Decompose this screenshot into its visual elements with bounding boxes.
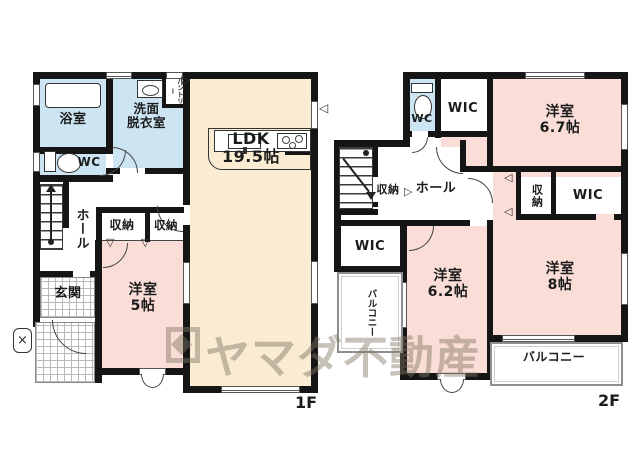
wall: [95, 240, 102, 383]
wall: [334, 220, 470, 226]
wall: [63, 180, 69, 228]
window: [311, 101, 318, 129]
room-wic-right: WIC: [556, 183, 620, 209]
floor-label-1f: 1F: [295, 393, 317, 412]
room-ldk: LDK19.5帖: [197, 122, 305, 174]
closet-door-marker-icon: ◁: [504, 172, 512, 183]
closet-door-marker-icon: ▽: [141, 237, 149, 248]
closet-door-marker-icon: ▽: [106, 237, 114, 248]
window: [621, 104, 628, 150]
sliding-door: [183, 262, 190, 304]
floor-label-2f: 2F: [598, 391, 620, 410]
window: [33, 152, 40, 172]
bathtub-icon: [45, 83, 101, 108]
room-hall-2f: ホール: [405, 178, 467, 200]
window: [106, 72, 132, 79]
room-balcony-bottom: バルコニー: [498, 347, 610, 369]
room-wc-2f: WC: [405, 110, 439, 128]
room-storage-b: 収納: [147, 212, 185, 240]
wall: [551, 214, 596, 220]
stairs-start-dot: [363, 150, 369, 156]
wall: [334, 209, 380, 215]
wall: [463, 166, 628, 172]
stairs-arrow-head: [46, 184, 56, 192]
closet-door-marker-icon: ◁: [504, 206, 512, 217]
wall: [516, 214, 556, 220]
window: [33, 84, 40, 106]
toilet-tank-icon: [411, 83, 433, 93]
door-arc: [468, 178, 493, 203]
floor-plan-canvas: × ▷ ◁ ▽ ▽ 浴室 洗面脱衣室 パントリー WC ホール 収納 収納 玄関…: [0, 0, 640, 469]
room-storage-hall: 収納: [369, 180, 407, 200]
room-western8: 洋室8帖: [518, 255, 602, 299]
water-heater-icon: ×: [13, 328, 32, 353]
wall: [487, 72, 493, 166]
room-pantry: パントリー: [169, 76, 181, 106]
room-entrance: 玄関: [42, 284, 94, 304]
toilet-tank-icon: [44, 151, 56, 172]
wall: [614, 214, 628, 220]
opening-marker-icon: ◁: [319, 102, 328, 114]
watermark-text: ヤマダ不動産: [205, 321, 481, 386]
room-western5: 洋室5帖: [105, 278, 181, 318]
sink-bowl-icon: [142, 85, 159, 96]
opening-marker-icon: ▷: [404, 186, 412, 197]
room-western62: 洋室6.2帖: [408, 262, 488, 306]
window: [621, 253, 628, 305]
room-western67: 洋室6.7帖: [518, 98, 602, 142]
wall: [334, 140, 410, 147]
wall: [183, 72, 190, 205]
opening-marker-icon: ▷: [181, 74, 190, 86]
window: [525, 72, 585, 79]
stairs-arrow: [50, 191, 52, 241]
wall: [33, 72, 40, 327]
wall: [33, 175, 113, 182]
room-wic-top: WIC: [439, 96, 487, 122]
watermark-logo-diamond: [171, 334, 192, 355]
room-storage-mid: 収納: [522, 178, 550, 214]
entry-door-swing: [141, 374, 164, 388]
window: [311, 261, 318, 304]
watermark-logo-icon: [166, 327, 200, 363]
room-bath: 浴室: [40, 110, 106, 130]
room-wc-1f: WC: [74, 152, 104, 174]
stairs-start-dot: [48, 239, 54, 245]
room-hall-1f: ホール: [70, 198, 90, 260]
window: [502, 335, 575, 342]
room-wic-left: WIC: [341, 234, 399, 260]
window: [221, 386, 300, 393]
